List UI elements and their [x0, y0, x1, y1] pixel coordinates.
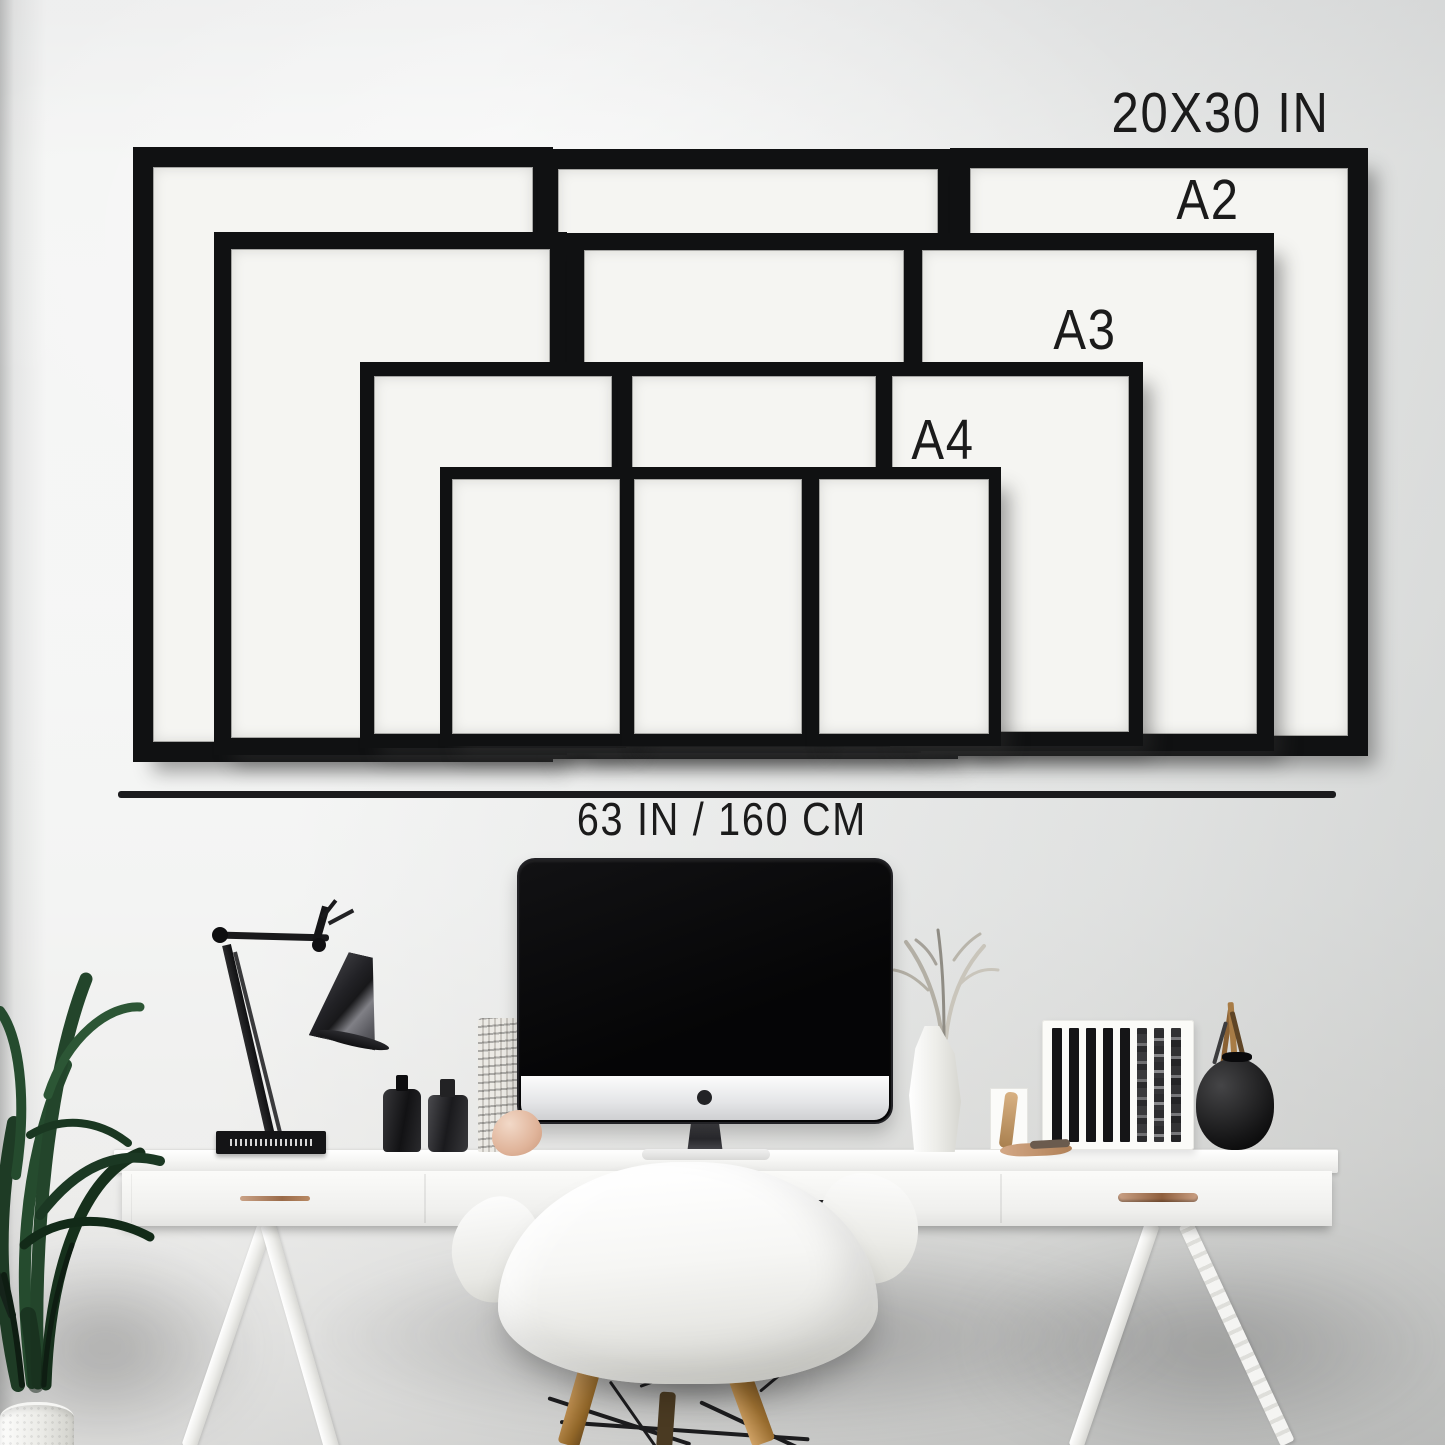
potted-plant-fronds: [0, 915, 178, 1415]
size-label-20x30: 20X30 IN: [1112, 85, 1330, 142]
room-scene: 20X30 IN A2 A3 A4 63 IN / 160 CM: [0, 0, 1445, 1445]
drawer-seam-right: [1000, 1174, 1002, 1223]
size-label-a4: A4: [912, 412, 975, 469]
black-sphere-vase: [1196, 1058, 1274, 1150]
file-slat: [1137, 1028, 1147, 1142]
drawer-handle-left: [240, 1196, 310, 1201]
file-slat: [1171, 1028, 1181, 1142]
size-label-a2: A2: [1177, 172, 1240, 229]
imac-chin: [521, 1076, 889, 1120]
picture-frame-a4-right: [807, 467, 1001, 746]
file-slat: [1154, 1028, 1164, 1142]
file-slat: [1052, 1028, 1062, 1142]
lamp-hinge-prong-2: [328, 909, 355, 926]
sphere-vase-rim: [1222, 1052, 1252, 1062]
picture-frame-a4-center: [622, 467, 814, 746]
picture-frame-a4-left: [440, 467, 632, 746]
file-slat: [1086, 1028, 1096, 1142]
white-vase: [909, 1026, 961, 1152]
dried-branches: [872, 920, 1022, 1040]
book-spine-text: [230, 1139, 312, 1146]
dark-glass-bottle: [383, 1089, 421, 1152]
file-slat: [1069, 1028, 1079, 1142]
lamp-arm-lower: [222, 944, 274, 1133]
file-slat: [1103, 1028, 1113, 1142]
imac-logo-dot: [697, 1090, 712, 1105]
width-measure-label: 63 IN / 160 CM: [577, 796, 845, 842]
drawer-handle-right: [1118, 1193, 1198, 1202]
record-file-holder: [1042, 1020, 1194, 1150]
bottle-cap: [396, 1075, 408, 1091]
imac-stand-foot: [642, 1149, 770, 1160]
lamp-arm-rod-back: [233, 952, 282, 1133]
plant-pot: [0, 1402, 74, 1445]
carafe-neck: [440, 1079, 455, 1097]
dark-glass-carafe: [428, 1095, 468, 1152]
lamp-elbow-joint: [212, 927, 228, 943]
drawer-seam-left: [424, 1174, 426, 1223]
size-label-a3: A3: [1054, 302, 1117, 359]
lamp-shade-joint: [312, 938, 326, 952]
file-slat: [1120, 1028, 1130, 1142]
imac-monitor: [517, 858, 893, 1124]
